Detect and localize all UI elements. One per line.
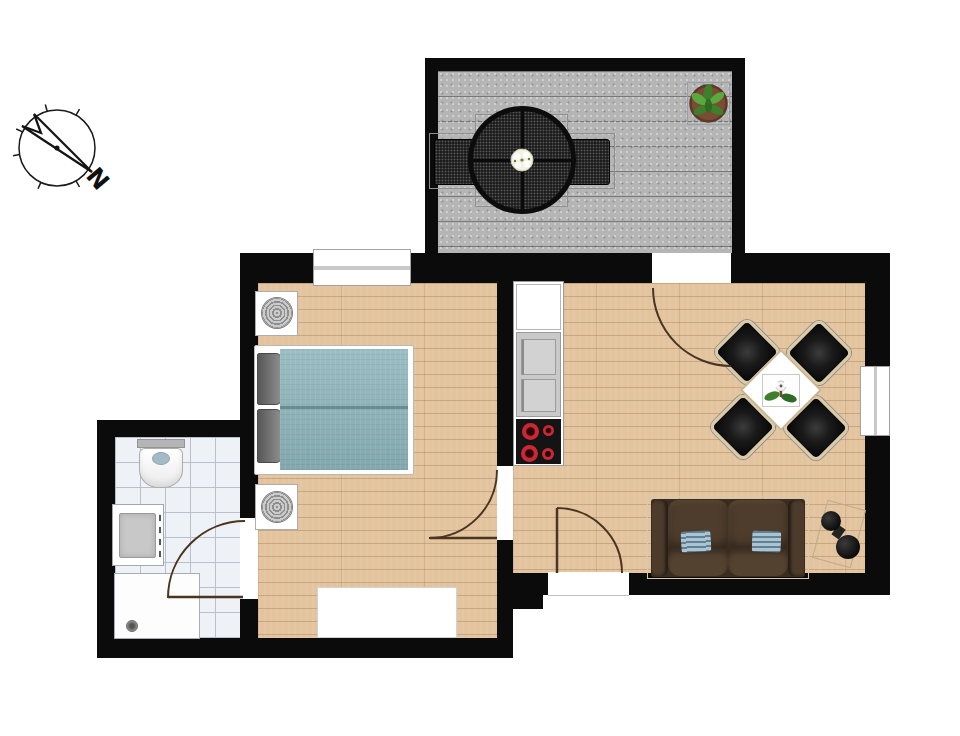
duvet-fold-line [280, 406, 408, 409]
bed-duvet [280, 349, 408, 470]
entrance-door-opening [548, 572, 629, 596]
toilet-flush-button [152, 452, 170, 465]
floor-plan-canvas: N [0, 0, 960, 736]
flower-petal [523, 152, 529, 158]
flower-petal [524, 161, 531, 168]
kitchen-fridge [516, 332, 561, 417]
compass-center-dot [55, 146, 60, 151]
fridge-door-lower [521, 379, 556, 412]
flower-petal [514, 154, 521, 161]
nightstand-lamp-top [262, 298, 292, 328]
bed-pillow-top [257, 353, 282, 405]
sink-faucet-dots [158, 512, 162, 560]
burner-front-left [522, 423, 539, 440]
burner-front-right [543, 425, 554, 436]
flower-petal [515, 162, 521, 168]
sofa-seat-cushion-right [728, 548, 788, 576]
centerpiece-leaf [763, 390, 781, 403]
wall-stub-entrance [513, 595, 543, 609]
compass-tick [38, 182, 41, 188]
toilet-tank [137, 439, 185, 448]
flower-center [520, 158, 523, 161]
sofa-seat-cushion-left [668, 548, 728, 576]
terrace-door-opening [652, 253, 731, 283]
bedroom-door-opening [497, 466, 513, 540]
centerpiece-stem [780, 391, 783, 397]
kitchen-cooktop [516, 419, 561, 464]
compass-tick [13, 155, 20, 156]
flower-leaf-dot [514, 160, 516, 162]
patio-table-flower [505, 143, 539, 177]
compass-needle [22, 114, 92, 172]
centerpiece-flower [772, 381, 779, 388]
wall-bottom-left [97, 638, 513, 658]
bedroom-rug [317, 587, 457, 638]
terrace-wall-right [732, 58, 745, 255]
terrace-wall-top [425, 58, 745, 71]
centerpiece-flower-center [780, 385, 783, 388]
compass-tick [76, 181, 80, 187]
plant-stem [706, 100, 710, 104]
fridge-door-upper [521, 339, 556, 375]
burner-back-left [521, 445, 538, 462]
centerpiece-flower [784, 381, 790, 387]
sofa-pillow-left [680, 530, 711, 553]
bed-pillow-bottom [257, 409, 282, 463]
terrace-plant [687, 82, 730, 125]
compass-tick [16, 129, 22, 132]
bedroom-window [313, 249, 411, 286]
dining-centerpiece-plant [762, 374, 800, 407]
bathroom-wall-top [97, 420, 258, 437]
burner-back-right [542, 448, 554, 460]
flower-leaf-dot [528, 158, 530, 160]
centerpiece-leaf [780, 392, 798, 404]
shower-drain [126, 620, 138, 632]
nightstand-lamp-bottom [262, 492, 292, 522]
side-table-top-small [821, 511, 841, 531]
living-room-window [860, 366, 890, 436]
kitchen-counter-top [516, 284, 561, 330]
compass-tick [45, 105, 47, 112]
kitchen-counter [513, 281, 564, 466]
sofa-pillow-right [752, 531, 782, 553]
compass-tick [76, 109, 80, 115]
sink-basin [119, 513, 156, 558]
bathroom-door-opening [240, 518, 258, 599]
wall-middle [497, 253, 513, 658]
compass: N [8, 100, 118, 200]
sofa-armrest-left [652, 500, 668, 576]
sofa-armrest-right [788, 500, 804, 576]
side-table-top-large [836, 535, 860, 559]
